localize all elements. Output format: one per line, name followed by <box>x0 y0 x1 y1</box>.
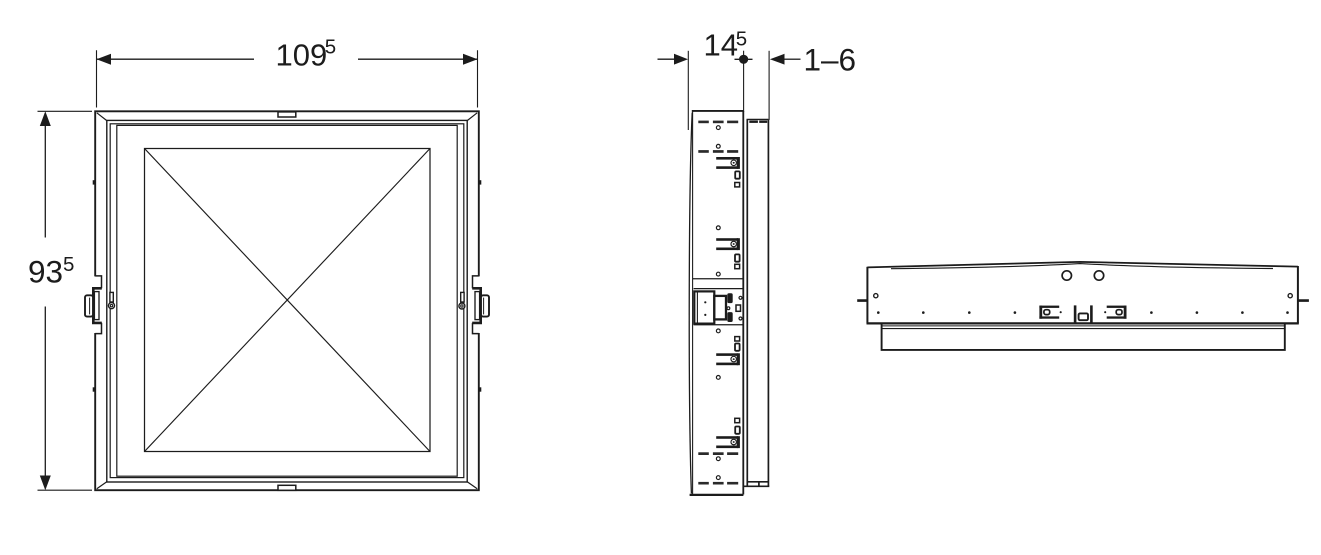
svg-text:14: 14 <box>704 28 738 63</box>
svg-text:93: 93 <box>28 254 63 290</box>
svg-text:5: 5 <box>325 36 336 59</box>
svg-text:5: 5 <box>736 28 747 51</box>
svg-text:5: 5 <box>63 253 74 276</box>
svg-text:109: 109 <box>276 38 328 73</box>
svg-text:1–6: 1–6 <box>804 42 857 78</box>
